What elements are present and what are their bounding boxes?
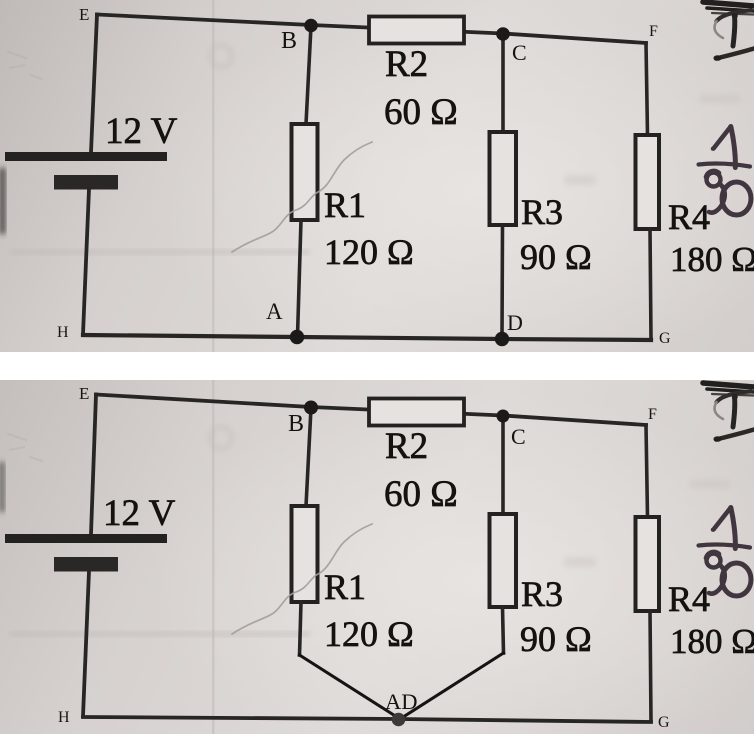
svg-text:F: F bbox=[648, 406, 657, 423]
svg-text:R1: R1 bbox=[324, 567, 366, 607]
svg-text:R1: R1 bbox=[324, 185, 366, 225]
svg-text:60 Ω: 60 Ω bbox=[384, 474, 458, 515]
svg-text:180 Ω: 180 Ω bbox=[670, 240, 754, 279]
svg-text:R2: R2 bbox=[385, 44, 428, 85]
svg-text:120 Ω: 120 Ω bbox=[324, 614, 414, 654]
svg-text:D: D bbox=[507, 310, 523, 335]
svg-text:H: H bbox=[58, 709, 70, 726]
svg-text:12 V: 12 V bbox=[103, 493, 176, 534]
svg-text:R4: R4 bbox=[668, 579, 710, 619]
svg-text:F: F bbox=[649, 23, 658, 40]
svg-text:G: G bbox=[658, 714, 670, 731]
svg-text:R2: R2 bbox=[385, 426, 428, 467]
svg-text:180 Ω: 180 Ω bbox=[670, 622, 754, 661]
svg-text:B: B bbox=[281, 28, 297, 54]
svg-text:90 Ω: 90 Ω bbox=[520, 619, 592, 659]
svg-text:E: E bbox=[79, 5, 89, 24]
svg-text:A: A bbox=[266, 299, 283, 324]
svg-text:C: C bbox=[512, 40, 527, 65]
svg-text:90 Ω: 90 Ω bbox=[520, 237, 592, 277]
svg-text:R3: R3 bbox=[521, 574, 563, 614]
svg-text:R3: R3 bbox=[521, 192, 563, 232]
svg-text:12 V: 12 V bbox=[105, 111, 178, 152]
svg-text:E: E bbox=[79, 384, 89, 403]
svg-text:C: C bbox=[511, 424, 526, 449]
svg-text:G: G bbox=[659, 330, 671, 347]
svg-text:120 Ω: 120 Ω bbox=[324, 232, 414, 272]
svg-text:H: H bbox=[57, 324, 69, 341]
svg-text:R4: R4 bbox=[668, 197, 710, 237]
svg-text:60 Ω: 60 Ω bbox=[384, 92, 458, 133]
svg-text:AD: AD bbox=[385, 689, 418, 714]
svg-text:B: B bbox=[288, 411, 304, 437]
